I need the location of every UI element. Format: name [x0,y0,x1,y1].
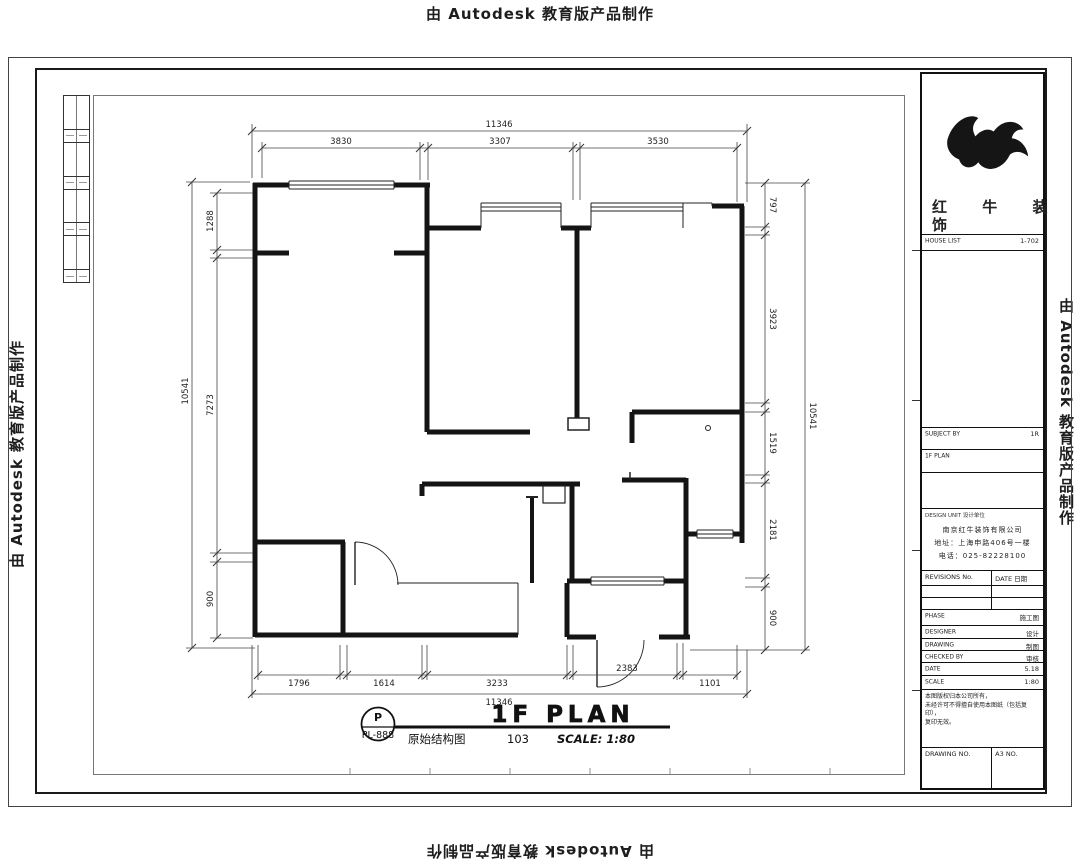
brand-name-line1: 红 牛 装 [932,196,1062,217]
subject-value: 1R [1030,430,1039,438]
dim-label: 900 [206,591,216,607]
peephole-mark [706,426,711,431]
sheet-size-label: A3 NO. [992,748,1043,788]
dim-label: 11346 [485,120,512,130]
border-tick [912,550,920,551]
dim-label: 10541 [807,402,817,429]
dim-label: 1796 [288,679,310,689]
company-phone: 电话：025-82228100 [922,551,1043,561]
house-list-value: 1-702 [1020,237,1039,245]
phase-row: PHASE 施工图 [922,609,1043,625]
company-name: 南京红牛装饰有限公司 [922,525,1043,535]
door-bottom-left [355,542,398,585]
dim-label: 3830 [330,137,352,147]
dim-label: 1519 [767,432,777,454]
note-line: 未经许可不得擅自使用本图纸（包括复印）， [925,702,1040,719]
cad-sheet: 由 Autodesk 教育版产品制作 由 Autodesk 教育版产品制作 由 … [0,0,1080,864]
designer-value: 设计 [1026,628,1039,638]
dim-label: 1614 [373,679,395,689]
window-top-left [289,181,394,189]
dim-label: 797 [767,197,777,213]
bull-logo-icon [936,102,1032,186]
designer-label: DESIGNER [925,628,956,635]
border-tick [912,250,920,251]
drawing-row: DRAWING 制图 [922,638,1043,650]
window-vestibule [591,577,664,585]
border-tick [912,400,920,401]
subject-label: SUBJECT BY [925,430,960,437]
dim-label: 3530 [647,137,669,147]
copyright-note: 本图版权归本公司所有， 未经许可不得擅自使用本图纸（包括复印）， 复印无效。 [922,689,1043,747]
dim-label: 900 [767,610,777,626]
watermark-bottom: 由 Autodesk 教育版产品制作 [0,841,1080,862]
logo-cell: 红 牛 装 饰 [922,74,1043,234]
revision-empty-row [922,585,1043,597]
checked-label: CHECKED BY [925,653,963,660]
dim-label: 7273 [206,394,216,416]
date-row: DATE 5.18 [922,662,1043,675]
house-list-label: HOUSE LIST [925,237,961,244]
walls [253,183,744,637]
dim-label: 1288 [206,210,216,232]
plan-title: 1F PLAN [491,702,634,728]
phase-label: PHASE [925,612,945,619]
designer-row: DESIGNER 设计 [922,625,1043,638]
drawing-area-border [94,96,905,775]
design-unit-header: DESIGN UNIT 设计单位 [922,509,1043,522]
drawing-no-row: DRAWING NO. A3 NO. [922,747,1043,788]
window-top-right [591,203,712,228]
revision-register-strip [63,95,90,283]
revisions-label: REVISIONS No. [922,571,992,585]
note-line: 本图版权归本公司所有， [925,693,1040,702]
drawing-label: DRAWING [925,641,954,648]
brand-name-line2: 饰 [932,214,947,235]
phase-value: 施工图 [1020,612,1040,622]
dim-label: 2181 [767,519,777,541]
company-address: 地址：上海申路406号一楼 [922,538,1043,548]
plan-name-row: 1F PLAN [922,449,1043,472]
wall-foot-block [568,418,589,430]
scale-row: SCALE 1:80 [922,675,1043,689]
revisions-header-row: REVISIONS No. DATE 日期 [922,570,1043,585]
drawing-name: 原始结构图 [408,732,466,746]
date-label: DATE [925,665,941,672]
scale-note: SCALE: 1:80 [557,732,635,746]
dim-label: 1101 [699,679,721,689]
watermark-top: 由 Autodesk 教育版产品制作 [0,3,1080,24]
border-tick [912,690,920,691]
dim-label: 2383 [616,664,638,674]
company-cell: DESIGN UNIT 设计单位 南京红牛装饰有限公司 地址：上海申路406号一… [922,508,1043,570]
plan-title-group: P PL-888 1F PLAN 原始结构图 103 SCALE: 1:80 [362,702,671,746]
spare-box [922,472,1043,508]
dim-label: 3233 [486,679,508,689]
fold-ticks [350,768,830,774]
floor-plan-drawing: 11346 3830 3307 3530 1796 1614 3233 2383… [93,95,905,775]
scale-label: SCALE [925,678,944,685]
title-block: 红 牛 装 饰 HOUSE LIST 1-702 SUBJECT BY 1R 1… [920,72,1045,790]
date-value: 5.18 [1025,665,1039,673]
scale-value: 1:80 [1024,678,1039,686]
house-list-row: HOUSE LIST 1-702 [922,234,1043,250]
dim-label: 10541 [181,377,191,404]
note-line: 复印无效。 [925,719,1040,728]
bubble-letter: P [374,711,382,724]
dim-label: 3923 [767,308,777,330]
drawing-no: 103 [507,732,529,746]
duct-block [543,486,565,503]
subject-row: SUBJECT BY 1R [922,427,1043,449]
plan-name: 1F PLAN [925,452,950,459]
revision-empty-row [922,597,1043,609]
bubble-code: PL-888 [362,730,394,741]
window-right [697,530,733,538]
project-box [922,250,1043,427]
dim-label: 3307 [489,137,511,147]
drawing-no-label: DRAWING NO. [922,748,992,788]
checked-row: CHECKED BY 审核 [922,650,1043,662]
revisions-date-label: DATE 日期 [992,571,1043,585]
window-top-middle [481,203,561,228]
